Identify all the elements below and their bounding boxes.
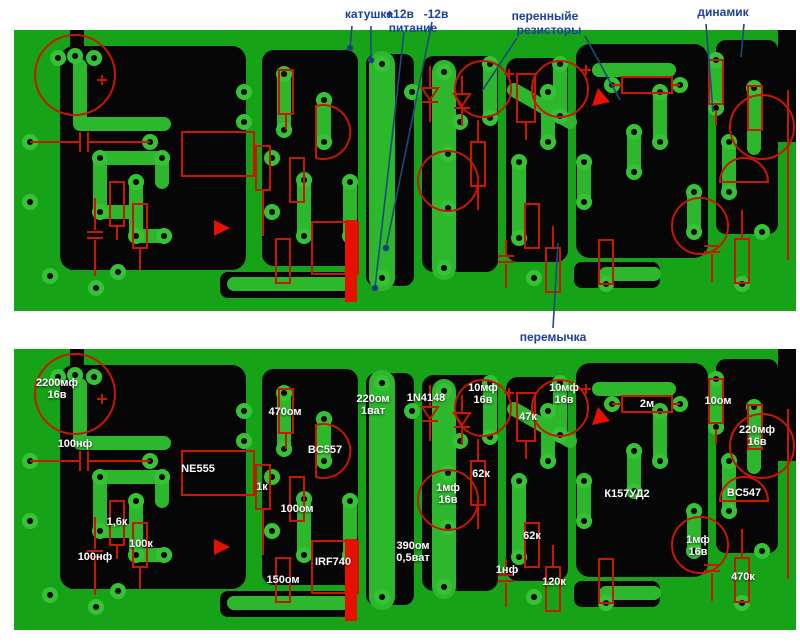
pcb-top-board <box>14 30 796 311</box>
pcb-bottom-board <box>14 349 796 630</box>
pcb-layout-image: катушка +12в питание -12в перенныйе рези… <box>0 0 800 643</box>
pcb-artwork <box>0 0 800 643</box>
